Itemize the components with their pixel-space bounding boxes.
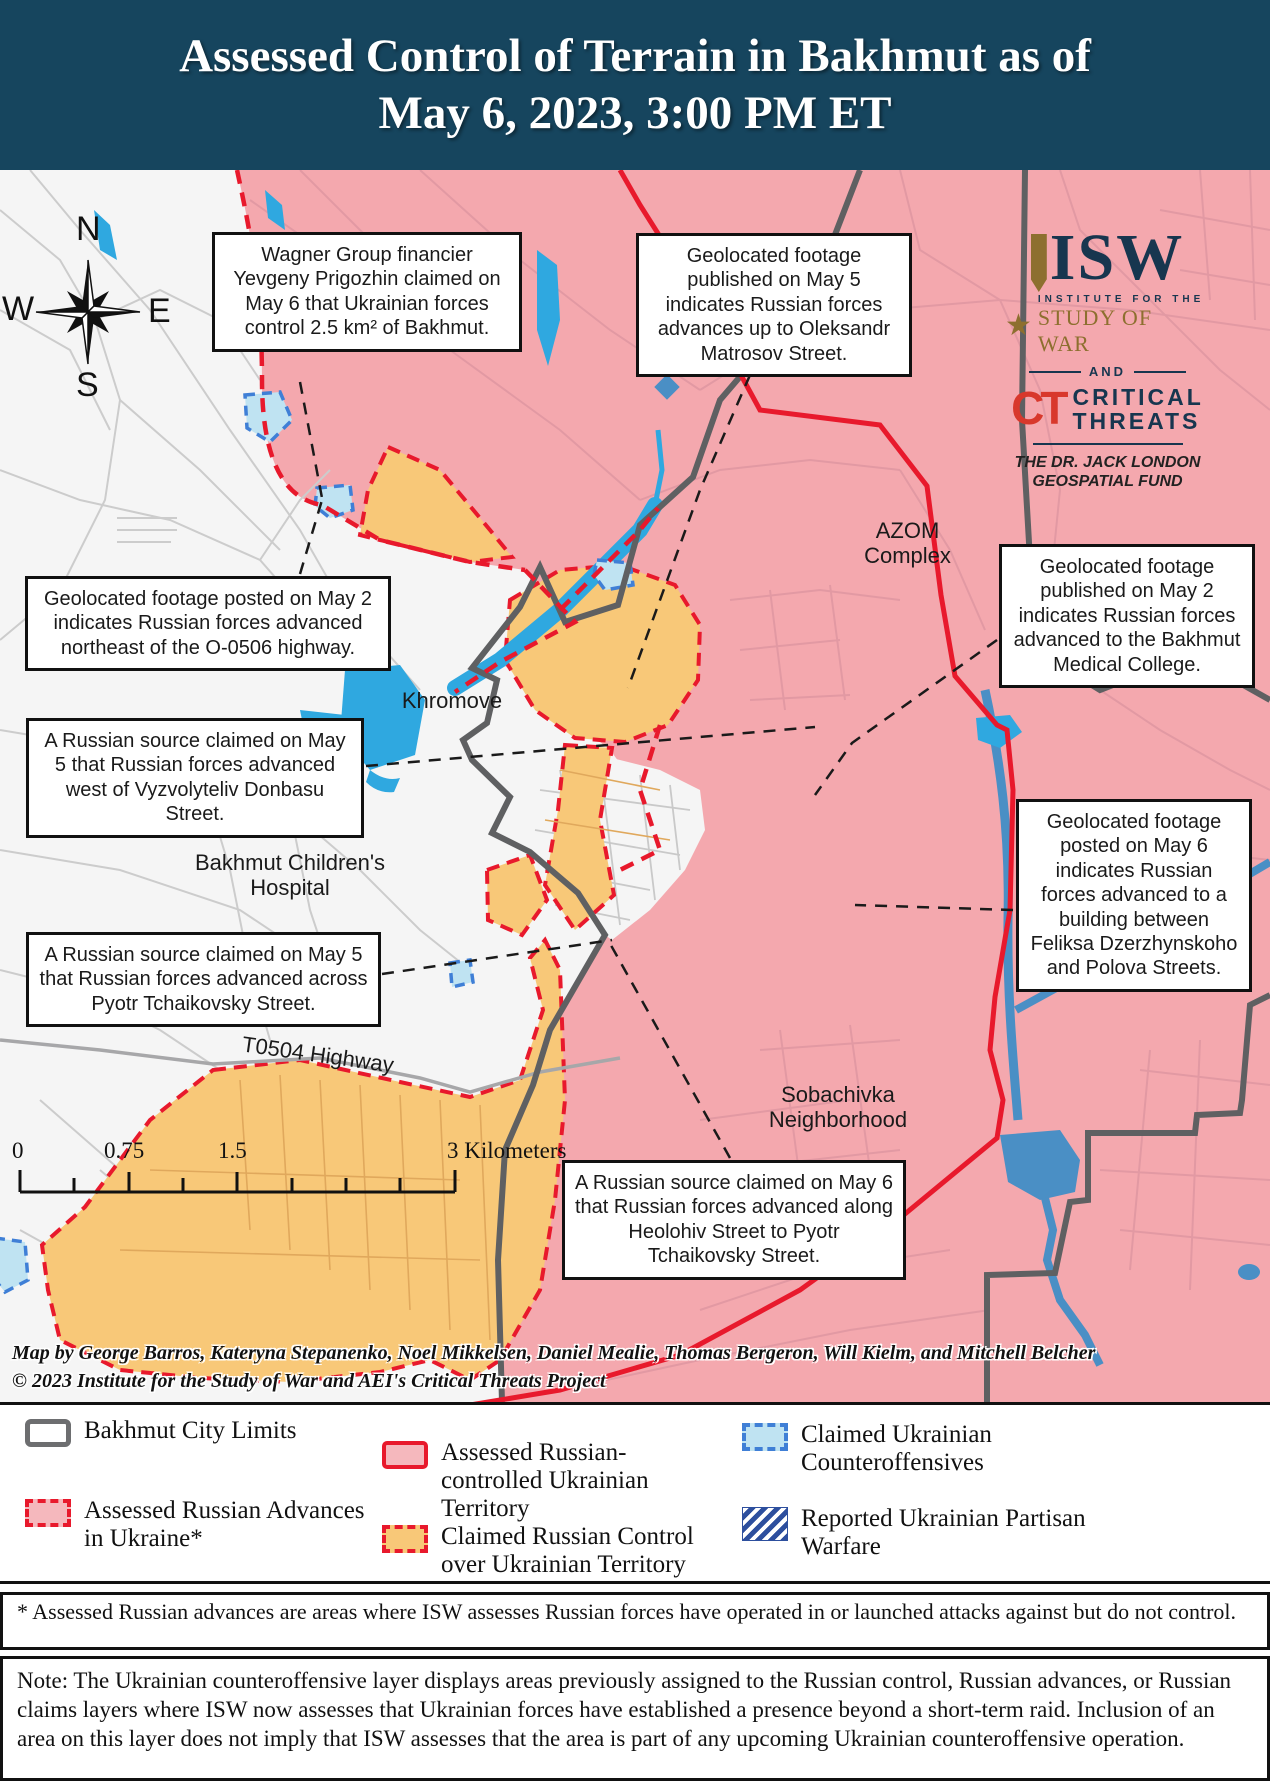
- scale-tick-0: 0: [12, 1138, 24, 1164]
- claimed-russian-swatch-icon: [382, 1525, 428, 1553]
- compass-south-label: S: [76, 366, 99, 405]
- callout-heolohiv-street: A Russian source claimed on May 6 that R…: [562, 1160, 906, 1280]
- legend-item-claimed-russian-control: Claimed Russian Control over Ukrainian T…: [382, 1523, 742, 1579]
- page-title-line2: May 6, 2023, 3:00 PM ET: [378, 85, 891, 142]
- fund-line1: THE DR. JACK LONDON: [1005, 453, 1210, 472]
- legend-item-ukrainian-counteroffensives: Claimed Ukrainian Counteroffensives: [742, 1421, 1072, 1477]
- city-limits-swatch-icon: [25, 1419, 71, 1447]
- divider-line: [1134, 371, 1186, 373]
- isw-ct-logo: ISW ★ INSTITUTE FOR THE STUDY OF WAR AND…: [1005, 228, 1210, 492]
- legend-item-city-limits: Bakhmut City Limits: [25, 1417, 375, 1447]
- scale-tick-15: 1.5: [218, 1138, 247, 1164]
- fund-line2: GEOSPATIAL FUND: [1005, 472, 1210, 491]
- scale-tick-3km: 3 Kilometers: [447, 1138, 566, 1164]
- legend-label: Assessed Russian Advances in Ukraine*: [84, 1497, 375, 1553]
- threats-text: THREATS: [1073, 409, 1204, 433]
- legend-label: Reported Ukrainian Partisan Warfare: [801, 1505, 1102, 1561]
- isw-bakhmut-map-page: Assessed Control of Terrain in Bakhmut a…: [0, 0, 1270, 1781]
- legend-label: Assessed Russian-controlled Ukrainian Te…: [441, 1439, 727, 1523]
- label-azom-complex: AZOM Complex: [845, 518, 970, 569]
- legend-item-russian-controlled: Assessed Russian-controlled Ukrainian Te…: [382, 1439, 727, 1523]
- callout-tchaikovsky-street: A Russian source claimed on May 5 that R…: [26, 932, 381, 1027]
- compass-north-label: N: [76, 210, 101, 249]
- critical-threats-ct-icon: CT: [1011, 388, 1064, 429]
- divider-line: [1029, 371, 1081, 373]
- callout-matrosov-street: Geolocated footage published on May 5 in…: [636, 233, 912, 377]
- map-canvas[interactable]: N S W E ISW ★ INSTITUTE FOR THE STUDY OF…: [0, 170, 1270, 1402]
- and-text: AND: [1089, 364, 1126, 379]
- isw-institute-text: INSTITUTE FOR THE: [1038, 294, 1210, 305]
- callout-o0506-highway: Geolocated footage posted on May 2 indic…: [25, 576, 391, 671]
- legend-item-partisan-warfare: Reported Ukrainian Partisan Warfare: [742, 1505, 1102, 1561]
- note-panel: Note: The Ukrainian counteroffensive lay…: [0, 1656, 1270, 1781]
- partisan-warfare-swatch-icon: [742, 1507, 788, 1541]
- legend-label: Bakhmut City Limits: [84, 1417, 297, 1445]
- divider-line: [1033, 443, 1183, 445]
- label-bakhmut-childrens-hospital: Bakhmut Children's Hospital: [175, 850, 405, 901]
- label-sobachivka-neighborhood: Sobachivka Neighborhood: [728, 1082, 948, 1133]
- callout-wagner-claim: Wagner Group financier Yevgeny Prigozhin…: [212, 232, 522, 352]
- isw-pillar-icon: [1031, 234, 1047, 292]
- isw-logotype: ISW: [1050, 228, 1184, 287]
- russian-controlled-swatch-icon: [382, 1441, 428, 1469]
- legend-item-russian-advances: Assessed Russian Advances in Ukraine*: [25, 1497, 375, 1553]
- russian-advances-swatch-icon: [25, 1499, 71, 1527]
- map-attribution-line1: Map by George Barros, Kateryna Stepanenk…: [12, 1342, 1095, 1365]
- legend-label: Claimed Ukrainian Counteroffensives: [801, 1421, 1072, 1477]
- critical-text: CRITICAL: [1073, 385, 1204, 409]
- isw-star-icon: ★: [1005, 311, 1032, 341]
- callout-donbasu-street: A Russian source claimed on May 5 that R…: [26, 718, 364, 838]
- compass-east-label: E: [148, 292, 171, 331]
- page-title-line1: Assessed Control of Terrain in Bakhmut a…: [179, 28, 1091, 85]
- map-attribution-line2: © 2023 Institute for the Study of War an…: [12, 1370, 606, 1393]
- compass-west-label: W: [2, 290, 34, 329]
- label-khromove: Khromove: [392, 688, 512, 713]
- scale-tick-075: 0.75: [104, 1138, 144, 1164]
- legend-panel: Bakhmut City Limits Assessed Russian Adv…: [0, 1402, 1270, 1584]
- isw-study-of-war-text: STUDY OF WAR: [1038, 305, 1210, 357]
- callout-medical-college: Geolocated footage published on May 2 in…: [999, 544, 1255, 688]
- footnote-panel: * Assessed Russian advances are areas wh…: [0, 1592, 1270, 1650]
- callout-dzerzhynskoho-polova: Geolocated footage posted on May 6 indic…: [1016, 799, 1252, 992]
- title-bar: Assessed Control of Terrain in Bakhmut a…: [0, 0, 1270, 170]
- legend-label: Claimed Russian Control over Ukrainian T…: [441, 1523, 742, 1579]
- counteroffensives-swatch-icon: [742, 1423, 788, 1451]
